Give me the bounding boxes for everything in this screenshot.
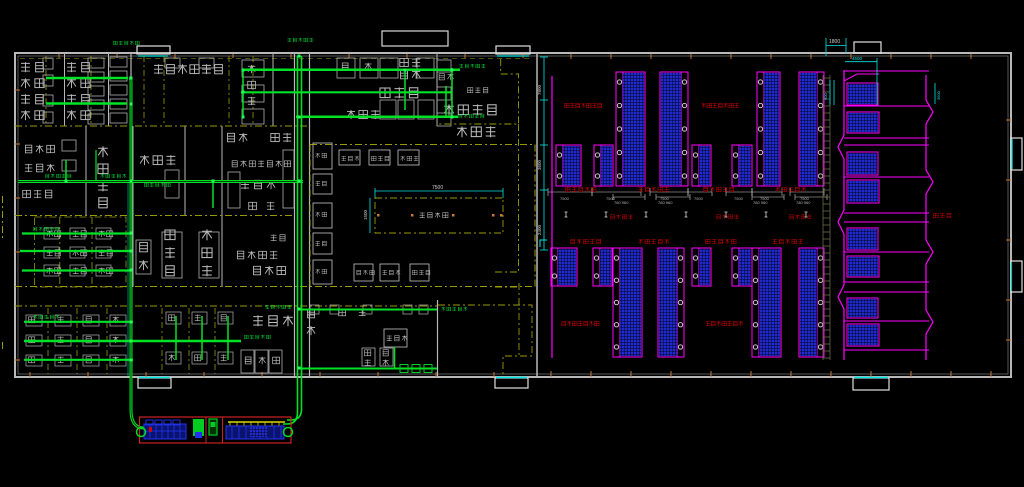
svg-text:900: 900 xyxy=(823,93,828,100)
svg-text:7800: 7800 xyxy=(537,84,542,95)
svg-text:7500: 7500 xyxy=(734,196,744,201)
svg-text:780 960: 780 960 xyxy=(658,200,673,205)
svg-text:4500: 4500 xyxy=(852,56,863,61)
svg-text:780 960: 780 960 xyxy=(614,200,629,205)
svg-text:780 960: 780 960 xyxy=(796,200,811,205)
svg-text:7500: 7500 xyxy=(560,196,570,201)
svg-text:2400: 2400 xyxy=(537,224,542,235)
svg-text:1800: 1800 xyxy=(829,39,840,45)
svg-text:7500: 7500 xyxy=(694,196,704,201)
svg-text:7500: 7500 xyxy=(432,185,443,191)
svg-text:3600: 3600 xyxy=(537,159,542,170)
svg-text:1500: 1500 xyxy=(363,209,368,220)
svg-text:3600: 3600 xyxy=(936,90,941,100)
svg-text:780 960: 780 960 xyxy=(753,200,768,205)
